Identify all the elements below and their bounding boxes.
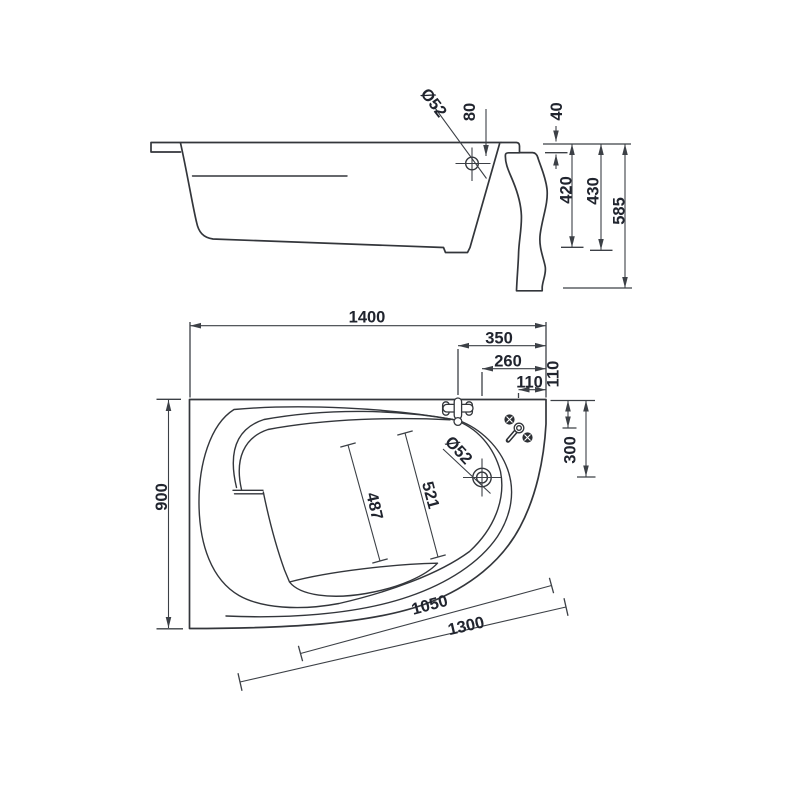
plan-dimension-lines bbox=[169, 326, 587, 628]
drain-crosshair-plan bbox=[463, 459, 501, 497]
dim-label-110-vertical: 110 bbox=[544, 361, 562, 388]
lever-base-ring bbox=[514, 423, 524, 433]
seat-shelf bbox=[233, 490, 264, 494]
dim-line-1300 bbox=[240, 607, 566, 682]
dim-label-1400: 1400 bbox=[349, 308, 386, 326]
basin-floor-and-ledge bbox=[263, 492, 437, 596]
plan-view: 1400 350 260 110 110 300 900 Ø52 521 487… bbox=[153, 308, 596, 691]
dim-label-drain-diameter-side: Ø52 bbox=[417, 85, 450, 121]
dim-label-40: 40 bbox=[548, 102, 566, 120]
dim-label-900: 900 bbox=[153, 483, 171, 511]
tub-side-outline bbox=[151, 143, 501, 253]
dim-label-521: 521 bbox=[418, 480, 443, 511]
dim-label-260: 260 bbox=[494, 352, 522, 370]
plan-diagonal-dimensions bbox=[238, 431, 568, 691]
drawing-page: Ø52 80 40 420 430 585 bbox=[0, 0, 800, 800]
dim-label-350: 350 bbox=[485, 329, 513, 347]
rim-caps bbox=[501, 143, 538, 158]
faucet-symbol bbox=[443, 398, 473, 425]
dim-label-drain-diameter-plan: Ø52 bbox=[441, 433, 475, 468]
plan-extension-lines bbox=[157, 322, 596, 629]
dim-label-300: 300 bbox=[561, 436, 579, 464]
backrest-contours bbox=[233, 411, 453, 489]
faucet-spout-outlet bbox=[454, 418, 462, 426]
dim-label-420: 420 bbox=[557, 176, 575, 204]
dim-label-430: 430 bbox=[584, 177, 602, 205]
dim-label-80: 80 bbox=[461, 103, 479, 121]
dim-label-487: 487 bbox=[362, 491, 386, 522]
control-knobs bbox=[505, 415, 532, 442]
bathtub-technical-drawing: Ø52 80 40 420 430 585 bbox=[0, 0, 800, 800]
dim-label-110-horizontal: 110 bbox=[516, 373, 543, 391]
dim-label-1300: 1300 bbox=[446, 613, 486, 639]
dim-label-585: 585 bbox=[610, 197, 628, 225]
side-dimension-lines bbox=[486, 109, 625, 288]
faucet-spout-stem bbox=[454, 398, 461, 419]
leg-profile bbox=[505, 153, 547, 291]
side-view: Ø52 80 40 420 430 585 bbox=[151, 85, 632, 291]
